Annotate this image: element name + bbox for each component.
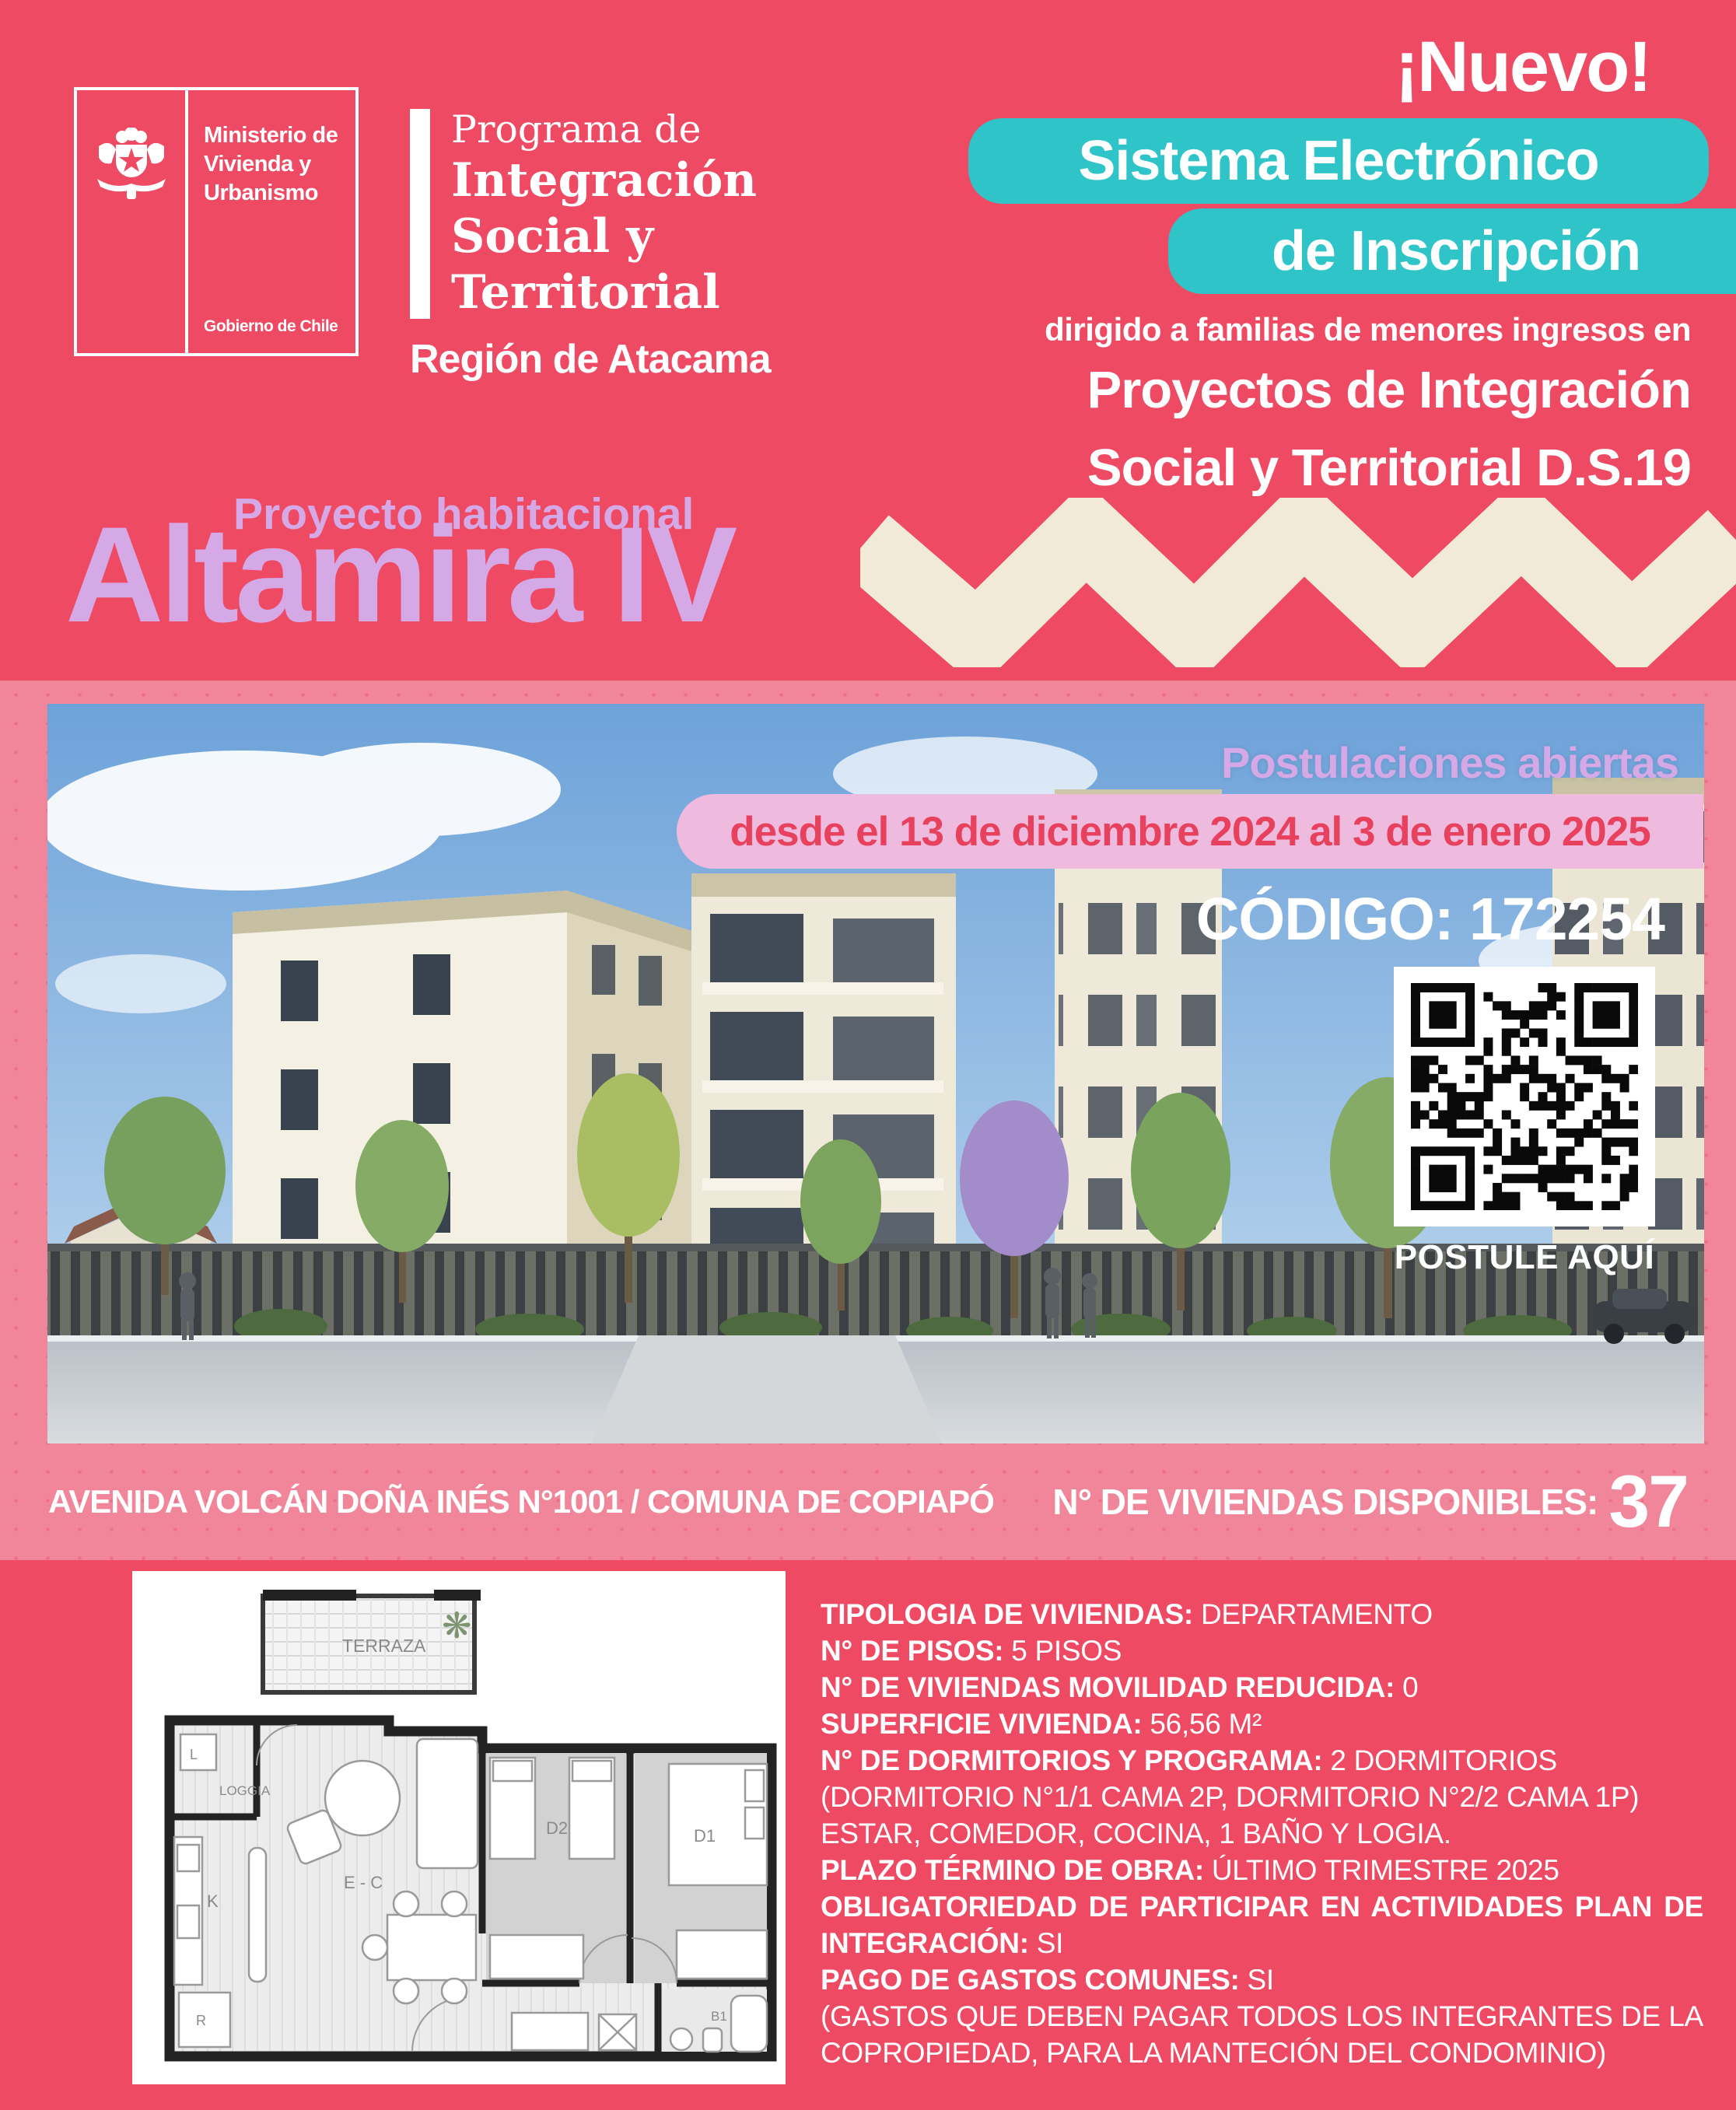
detail-value: DEPARTAMENTO (1201, 1598, 1433, 1630)
detail-value: 56,56 M² (1150, 1708, 1262, 1740)
detail-row: PAGO DE GASTOS COMUNES: SI (821, 1961, 1703, 1998)
fp-ec-label: E - C (344, 1873, 383, 1892)
logo-text-cell: Ministerio de Vivienda y Urbanismo Gobie… (188, 90, 355, 353)
detail-value: 0 (1402, 1671, 1418, 1703)
program-accent-bar (410, 109, 430, 319)
detail-label: N° DE DORMITORIOS Y PROGRAMA: (821, 1744, 1322, 1776)
date-range-banner: desde el 13 de diciembre 2024 al 3 de en… (677, 794, 1703, 869)
program-eyebrow: Programa de (451, 107, 702, 152)
detail-row: (GASTOS QUE DEBEN PAGAR TODOS LOS INTEGR… (821, 1998, 1703, 2071)
detail-row: PLAZO TÉRMINO DE OBRA: ÚLTIMO TRIMESTRE … (821, 1852, 1703, 1888)
detail-label: N° DE VIVIENDAS MOVILIDAD REDUCIDA: (821, 1671, 1395, 1703)
nuevo-badge: ¡Nuevo! (1395, 26, 1650, 108)
detail-label: PAGO DE GASTOS COMUNES: (821, 1964, 1240, 1996)
program-name: Integración Social y Territorial (451, 152, 757, 320)
program-name-line1: Integración (451, 152, 757, 208)
target-text: Proyectos de Integración Social y Territ… (1087, 352, 1692, 507)
ministry-line2: Vivienda y (204, 150, 355, 179)
plant-icon: ❋ (442, 1605, 472, 1646)
fp-k-label: K (207, 1891, 219, 1911)
project-details: TIPOLOGIA DE VIVIENDAS: DEPARTAMENTO N° … (821, 1596, 1703, 2071)
zigzag-decoration (860, 498, 1736, 667)
open-applications-label: Postulaciones abiertas (1221, 737, 1678, 788)
minvu-logo: Ministerio de Vivienda y Urbanismo Gobie… (74, 87, 359, 356)
detail-row: N° DE PISOS: 5 PISOS (821, 1632, 1703, 1669)
detail-label: PLAZO TÉRMINO DE OBRA: (821, 1854, 1204, 1886)
target-line2: Social y Territorial D.S.19 (1087, 429, 1692, 507)
detail-value: SI (1248, 1964, 1274, 1996)
program-name-line3: Territorial (451, 264, 757, 320)
dirigido-text: dirigido a familias de menores ingresos … (1045, 311, 1691, 348)
detail-row: TIPOLOGIA DE VIVIENDAS: DEPARTAMENTO (821, 1596, 1703, 1632)
detail-row: N° DE VIVIENDAS MOVILIDAD REDUCIDA: 0 (821, 1669, 1703, 1706)
fp-b1-label: B1 (711, 2009, 727, 2024)
ministry-name: Ministerio de Vivienda y Urbanismo (204, 121, 355, 208)
detail-row: N° DE DORMITORIOS Y PROGRAMA: 2 DORMITOR… (821, 1742, 1703, 1852)
program-region: Región de Atacama (410, 336, 771, 383)
fp-terraza-label: TERRAZA (342, 1636, 426, 1656)
system-banner-line1-text: Sistema Electrónico (1078, 129, 1598, 193)
detail-label: SUPERFICIE VIVIENDA: (821, 1708, 1142, 1740)
detail-label: TIPOLOGIA DE VIVIENDAS: (821, 1598, 1193, 1630)
system-banner-line2: de Inscripción (1168, 208, 1736, 294)
government-label: Gobierno de Chile (204, 317, 355, 336)
program-name-line2: Social y (451, 208, 757, 264)
detail-value: 5 PISOS (1011, 1635, 1122, 1667)
detail-value: SI (1037, 1927, 1063, 1959)
logo-emblem-cell (77, 90, 188, 353)
available-units-label: N° DE VIVIENDAS DISPONIBLES: (1052, 1481, 1598, 1523)
detail-label: OBLIGATORIEDAD DE PARTICIPAR EN ACTIVIDA… (821, 1891, 1703, 1959)
fp-l-label: L (190, 1747, 198, 1762)
floorplan-card: TERRAZA ❋ (132, 1571, 786, 2084)
project-code: CÓDIGO: 172254 (1196, 885, 1664, 954)
date-range-text: desde el 13 de diciembre 2024 al 3 de en… (730, 808, 1650, 856)
detail-row: OBLIGATORIEDAD DE PARTICIPAR EN ACTIVIDA… (821, 1888, 1703, 1961)
floorplan-drawing: TERRAZA ❋ (132, 1571, 786, 2084)
available-units: N° DE VIVIENDAS DISPONIBLES: 37 (1052, 1465, 1688, 1539)
poster-altamira-iv: Ministerio de Vivienda y Urbanismo Gobie… (0, 0, 1736, 2110)
detail-value: ÚLTIMO TRIMESTRE 2025 (1212, 1854, 1559, 1886)
fp-r-label: R (196, 2013, 206, 2028)
detail-label: N° DE PISOS: (821, 1635, 1003, 1667)
project-name: Altamira IV (65, 507, 733, 643)
fp-loggia-label: LOGGIA (219, 1783, 271, 1798)
system-banner-line2-text: de Inscripción (1272, 219, 1640, 283)
fp-d2-label: D2 (546, 1818, 568, 1838)
target-line1: Proyectos de Integración (1087, 352, 1692, 429)
project-address: AVENIDA VOLCÁN DOÑA INÉS N°1001 / COMUNA… (48, 1483, 994, 1520)
qr-code-card (1394, 967, 1655, 1226)
system-banner-line1: Sistema Electrónico (968, 118, 1709, 204)
chile-coat-of-arms-icon (93, 128, 170, 209)
detail-row: SUPERFICIE VIVIENDA: 56,56 M² (821, 1706, 1703, 1742)
qr-code-icon (1411, 983, 1638, 1210)
qr-caption: POSTULE AQUÍ (1394, 1238, 1655, 1277)
fp-d1-label: D1 (694, 1826, 716, 1846)
detail-value: (GASTOS QUE DEBEN PAGAR TODOS LOS INTEGR… (821, 2000, 1703, 2069)
available-units-value: 37 (1608, 1465, 1688, 1539)
ministry-line1: Ministerio de (204, 121, 355, 150)
ministry-line3: Urbanismo (204, 179, 355, 208)
address-bar: AVENIDA VOLCÁN DOÑA INÉS N°1001 / COMUNA… (0, 1443, 1736, 1560)
